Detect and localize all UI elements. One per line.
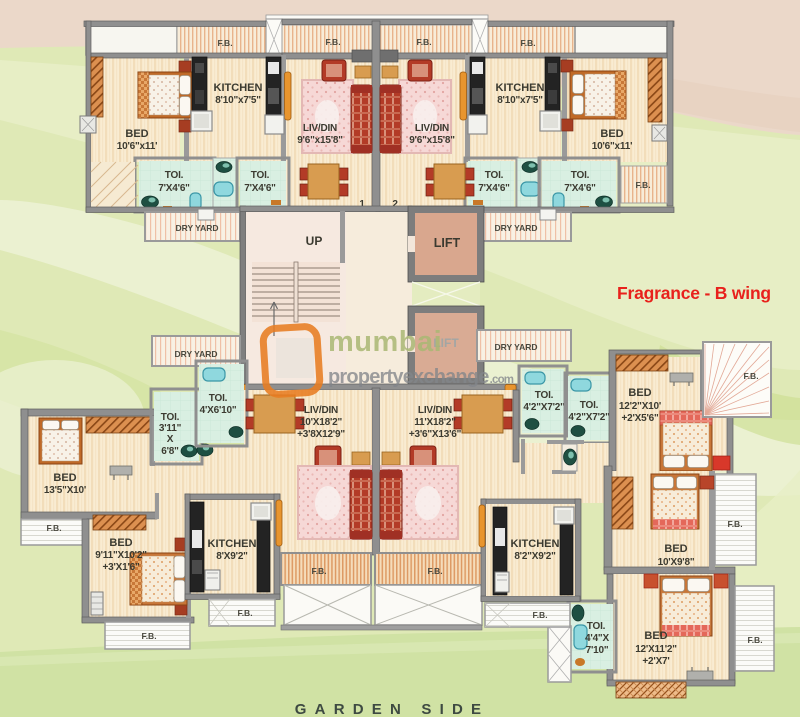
svg-text:4'2"X7'2": 4'2"X7'2" [568,412,610,423]
svg-text:KITCHEN: KITCHEN [496,82,545,94]
svg-text:DRY YARD: DRY YARD [176,223,219,233]
svg-text:F.B.: F.B. [743,371,758,381]
svg-text:10'6"x11': 10'6"x11' [592,141,633,152]
svg-text:F.B.: F.B. [141,631,156,641]
svg-text:7'X4'6": 7'X4'6" [478,183,510,194]
svg-text:Fragrance - B wing: Fragrance - B wing [617,283,771,303]
svg-text:DRY YARD: DRY YARD [495,223,538,233]
svg-text:8'10"x7'5": 8'10"x7'5" [215,95,261,106]
svg-text:7'X4'6": 7'X4'6" [158,183,190,194]
svg-text:7'X4'6": 7'X4'6" [564,183,596,194]
svg-text:GARDEN SIDE: GARDEN SIDE [295,701,489,717]
svg-text:F.B.: F.B. [325,37,340,47]
svg-text:TOI.: TOI. [571,170,590,181]
svg-text:7'X4'6": 7'X4'6" [244,183,276,194]
svg-text:F.B.: F.B. [416,37,431,47]
svg-text:TOI.: TOI. [165,170,184,181]
svg-text:BED: BED [125,128,148,140]
svg-text:BED: BED [644,630,667,642]
svg-text:UP: UP [306,234,323,248]
svg-text:4'X6'10": 4'X6'10" [200,405,237,416]
svg-text:F.B.: F.B. [427,566,442,576]
svg-text:TOI.: TOI. [580,400,599,411]
svg-text:TOI.: TOI. [161,412,180,423]
svg-text:LIV/DIN: LIV/DIN [418,405,452,416]
svg-text:10'6"x11': 10'6"x11' [117,141,158,152]
svg-text:11'X18'2": 11'X18'2" [414,417,456,428]
svg-text:LIV/DIN: LIV/DIN [303,123,337,134]
svg-text:+3'8X12'9": +3'8X12'9" [297,429,345,440]
svg-text:9'11"X10'2": 9'11"X10'2" [95,550,147,561]
svg-text:+2'X7': +2'X7' [642,656,669,667]
svg-text:TOI.: TOI. [209,393,228,404]
svg-text:mumbai: mumbai [328,326,442,358]
svg-text:F.B.: F.B. [237,608,252,618]
svg-text:KITCHEN: KITCHEN [511,538,560,550]
svg-text:BED: BED [628,387,651,399]
svg-text:+2'X5'6": +2'X5'6" [621,413,659,424]
svg-text:DRY YARD: DRY YARD [175,349,218,359]
svg-text:F.B.: F.B. [46,523,61,533]
svg-text:F.B.: F.B. [532,610,547,620]
svg-text:8'2"X9'2": 8'2"X9'2" [514,551,556,562]
svg-text:DRY YARD: DRY YARD [495,342,538,352]
svg-text:X: X [167,434,174,445]
svg-text:10'X18'2": 10'X18'2" [300,417,343,428]
svg-text:+3'X1'6": +3'X1'6" [102,562,140,573]
svg-text:4'4"X: 4'4"X [585,633,609,644]
svg-text:BED: BED [53,472,76,484]
svg-text:8'X9'2": 8'X9'2" [216,551,248,562]
svg-text:+3'6"X13'6": +3'6"X13'6" [409,429,462,440]
svg-text:KITCHEN: KITCHEN [208,538,257,550]
svg-text:TOI.: TOI. [587,621,606,632]
svg-text:F.B.: F.B. [217,38,232,48]
svg-text:LIV/DIN: LIV/DIN [304,405,338,416]
svg-text:12'2"X10': 12'2"X10' [619,401,661,412]
svg-text:9'6"x15'8": 9'6"x15'8" [297,135,343,146]
svg-text:12'X11'2": 12'X11'2" [635,644,677,655]
svg-text:F.B.: F.B. [727,519,742,529]
svg-text:9'6"x15'8": 9'6"x15'8" [409,135,455,146]
svg-text:LIFT: LIFT [434,236,461,250]
svg-text:10'X9'8": 10'X9'8" [658,557,695,568]
svg-text:LIV/DIN: LIV/DIN [415,123,449,134]
svg-text:3'11": 3'11" [159,423,182,434]
svg-text:BED: BED [109,537,132,549]
svg-text:F.B.: F.B. [635,180,650,190]
svg-text:13'5"X10': 13'5"X10' [44,485,86,496]
svg-text:8'10"x7'5": 8'10"x7'5" [497,95,543,106]
svg-text:F.B.: F.B. [520,38,535,48]
svg-text:6'8": 6'8" [161,446,179,457]
svg-text:propertyexchange.com: propertyexchange.com [328,366,514,388]
svg-text:TOI.: TOI. [535,390,554,401]
svg-text:F.B.: F.B. [311,566,326,576]
svg-text:7'10": 7'10" [586,645,609,656]
svg-text:TOI.: TOI. [485,170,504,181]
svg-text:F.B.: F.B. [747,635,762,645]
svg-text:KITCHEN: KITCHEN [214,82,263,94]
svg-text:BED: BED [600,128,623,140]
svg-text:BED: BED [664,543,687,555]
svg-text:4'2"X7'2": 4'2"X7'2" [523,402,565,413]
svg-text:TOI.: TOI. [251,170,270,181]
